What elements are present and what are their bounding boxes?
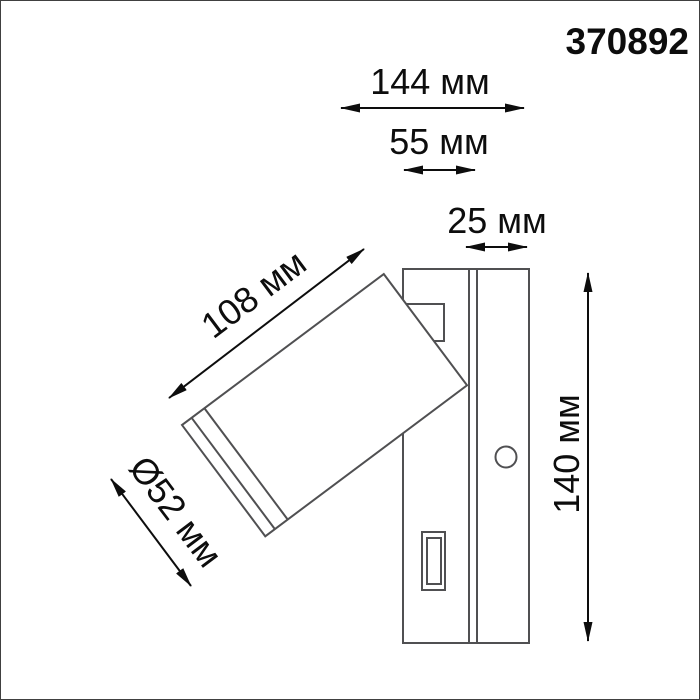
total-width-label: 144 мм — [370, 61, 490, 102]
switch-button — [496, 447, 517, 468]
usb-port-inner — [427, 538, 441, 584]
spot-length-label: 108 мм — [193, 242, 313, 346]
height-label: 140 мм — [546, 394, 587, 514]
plate-body-width-label: 55 мм — [389, 121, 489, 162]
wall-lamp-dimension-drawing: 370892 144 мм 55 мм 25 мм 108 мм Ø52 мм … — [1, 1, 700, 700]
product-article-number: 370892 — [566, 21, 689, 62]
plate-depth-label: 25 мм — [447, 200, 547, 241]
technical-drawing-page: 370892 144 мм 55 мм 25 мм 108 мм Ø52 мм … — [0, 0, 700, 700]
